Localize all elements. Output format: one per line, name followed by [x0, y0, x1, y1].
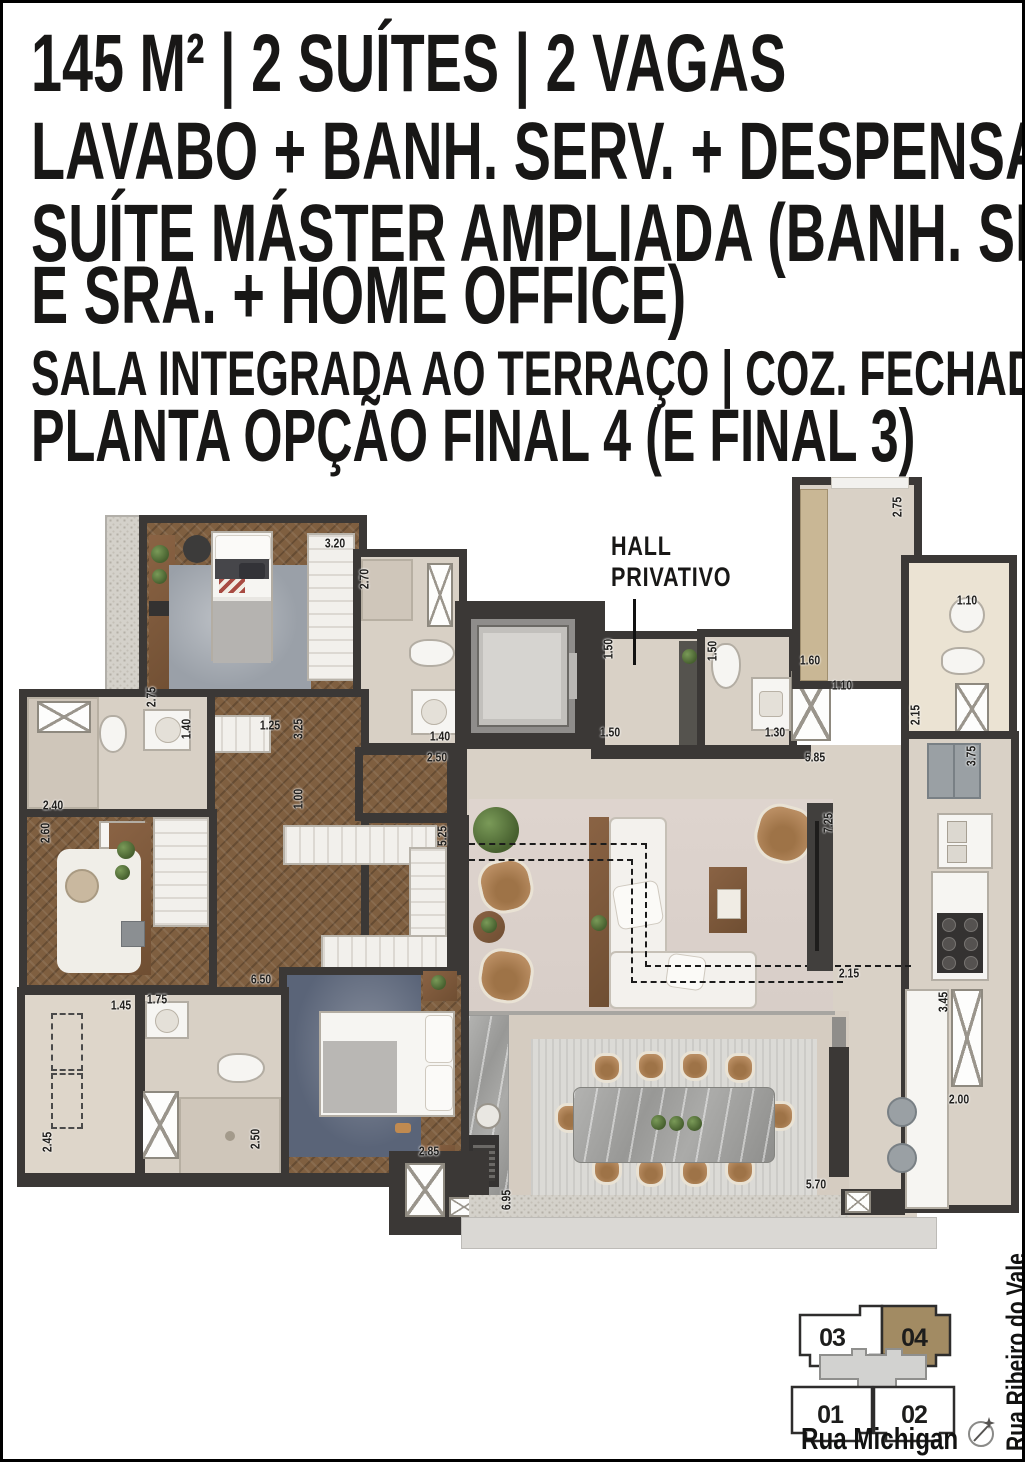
hall-leader-line: [633, 599, 636, 665]
burner-icon: [942, 956, 956, 970]
option-wall-dashed: [469, 859, 633, 861]
terrace-door: [832, 1017, 846, 1047]
living-console: [589, 817, 609, 1007]
street-label-right: Rua Ribeiro do Vale: [1001, 1253, 1025, 1451]
terrace-ledge: [461, 1217, 937, 1249]
master-bed-throw: [323, 1041, 397, 1113]
office-wardrobe: [153, 817, 209, 927]
sliding-door-line: [465, 1011, 835, 1015]
lavabo-basin: [759, 691, 783, 717]
plant-icon: [651, 1115, 666, 1130]
terrace-edge-pebble: [469, 1195, 849, 1217]
sink-basin: [155, 1009, 179, 1033]
toilet-sra: [99, 715, 127, 753]
keyplan-label-03: 03: [819, 1324, 845, 1352]
shower-drain: [225, 1131, 235, 1141]
kitchen-sink-basin: [947, 821, 967, 843]
plant-icon: [117, 841, 135, 859]
burner-icon: [942, 918, 956, 932]
suite2-round-chair: [183, 535, 211, 563]
plant-icon: [152, 569, 167, 584]
wall: [829, 1047, 849, 1177]
plant-icon: [682, 649, 697, 664]
suite2-sink-basin: [421, 699, 447, 725]
duct-shaft: [951, 989, 983, 1087]
hall-label-line1: HALL: [611, 531, 731, 562]
tv-screen: [815, 821, 819, 951]
master-pillow: [425, 1065, 453, 1111]
elevator-door: [569, 653, 577, 699]
burner-icon: [964, 956, 978, 970]
coffee-table-tray: [717, 889, 741, 919]
duct-shaft: [845, 1191, 871, 1213]
suite2-tv: [149, 601, 171, 616]
lavabo-toilet: [711, 643, 741, 689]
duct-shaft: [955, 683, 989, 735]
service-window: [831, 477, 909, 489]
burner-icon: [942, 937, 956, 951]
dining-chair: [725, 1053, 755, 1083]
burner-icon: [964, 937, 978, 951]
kitchen-island: [905, 989, 949, 1209]
kitchen-sink-basin: [947, 845, 967, 863]
option-wall-dashed: [469, 843, 647, 845]
hall-label-line2: PRIVATIVO: [611, 562, 731, 593]
option-wall-dashed: [645, 965, 911, 967]
suite2-shower: [361, 559, 413, 621]
wall: [17, 1173, 391, 1187]
suite2-closet: [307, 533, 355, 681]
suite2-toilet: [409, 639, 455, 667]
tv-wall: [807, 803, 833, 971]
plant-icon: [151, 545, 169, 563]
burner-icon: [964, 918, 978, 932]
terrace-sink: [475, 1103, 501, 1129]
master-pillow: [425, 1015, 453, 1063]
duct-shaft: [37, 701, 91, 733]
keyplan-core: [820, 1349, 926, 1387]
compass-icon: [963, 1413, 1001, 1453]
service-sink: [949, 597, 985, 633]
duct-shaft: [427, 563, 453, 627]
suite2-bed-pillows: [215, 535, 271, 561]
dining-chair: [680, 1051, 710, 1081]
suite2-duvet: [213, 597, 271, 663]
elevator-car-floor: [483, 633, 561, 719]
master-closet-right: [409, 847, 447, 937]
wall: [591, 745, 811, 759]
suite2-rock-pillow: [239, 563, 265, 579]
option-wall-dashed: [631, 981, 843, 983]
floor-plan-page: 145 M² | 2 SUÍTES | 2 VAGAS LAVABO + BAN…: [0, 0, 1025, 1462]
plant-icon: [669, 1116, 684, 1131]
street-label-bottom: Rua Michigan: [801, 1421, 958, 1457]
office-chair: [65, 869, 99, 903]
sofa-pillow: [665, 953, 707, 992]
hall-privativo-label: HALL PRIVATIVO: [611, 531, 762, 593]
fridge-divider: [953, 745, 955, 797]
kitchen-stool: [887, 1097, 917, 1127]
plant-icon: [431, 975, 446, 990]
service-counter: [800, 489, 828, 681]
palm-plant-icon: [473, 807, 519, 853]
kitchen-stool: [887, 1143, 917, 1173]
master-toilet: [217, 1053, 265, 1083]
plant-icon: [115, 865, 130, 880]
option-wall-dashed: [631, 859, 633, 983]
plant-icon: [481, 917, 497, 933]
keyplan-label-04: 04: [901, 1324, 928, 1352]
slippers: [395, 1123, 411, 1133]
floor-plan: HALL PRIVATIVO 3.202.702.751.401.253.251…: [3, 3, 1025, 1462]
option-wall-dashed: [645, 843, 647, 967]
dining-chair: [636, 1051, 666, 1081]
optional-cabinet-dashed: [51, 1073, 83, 1129]
dining-chair: [592, 1053, 622, 1083]
plant-icon: [687, 1116, 702, 1131]
optional-cabinet-dashed: [51, 1013, 83, 1071]
sink-basin: [155, 717, 181, 743]
duct-shaft: [405, 1163, 445, 1217]
plant-icon: [591, 915, 607, 931]
duct-shaft: [141, 1091, 179, 1159]
service-toilet: [941, 647, 985, 675]
sofa-pillow: [612, 879, 665, 930]
office-gadget: [121, 921, 145, 947]
suite2-chevron-blanket: [219, 579, 245, 593]
